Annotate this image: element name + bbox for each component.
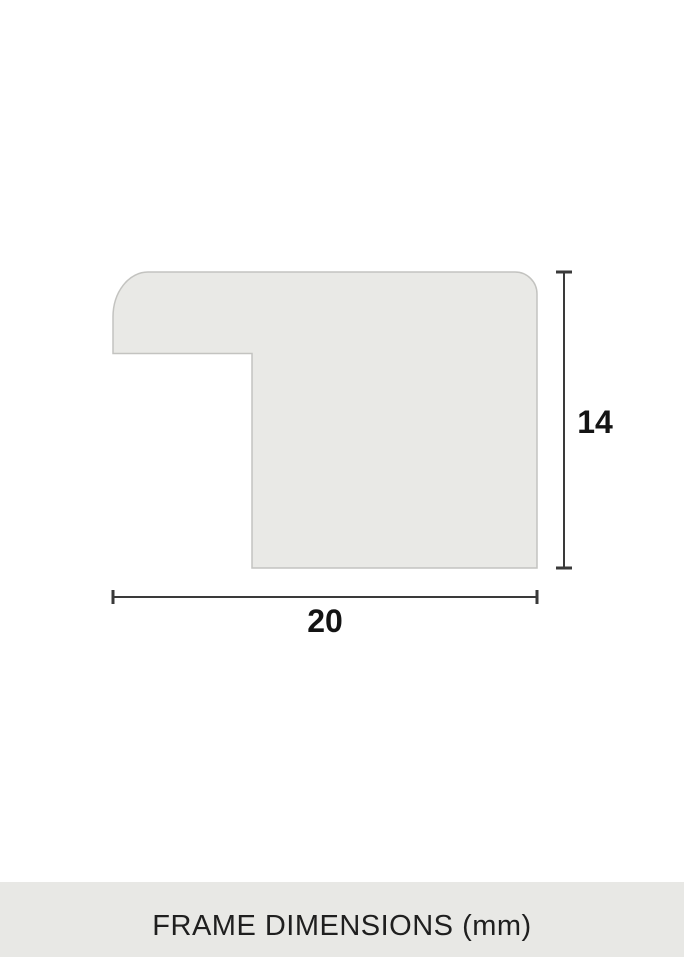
footer-caption-bar: FRAME DIMENSIONS (mm) <box>0 882 684 957</box>
footer-caption-label: FRAME DIMENSIONS (mm) <box>152 910 531 942</box>
width-dimension-line <box>113 590 537 604</box>
width-value-label: 20 <box>307 603 343 639</box>
height-value-label: 14 <box>577 404 613 440</box>
frame-profile-shape <box>113 272 537 568</box>
frame-profile-diagram: 14 20 <box>0 0 684 882</box>
frame-dimensions-image: 14 20 FRAME DIMENSIONS (mm) <box>0 0 684 957</box>
height-dimension-line <box>556 272 572 568</box>
